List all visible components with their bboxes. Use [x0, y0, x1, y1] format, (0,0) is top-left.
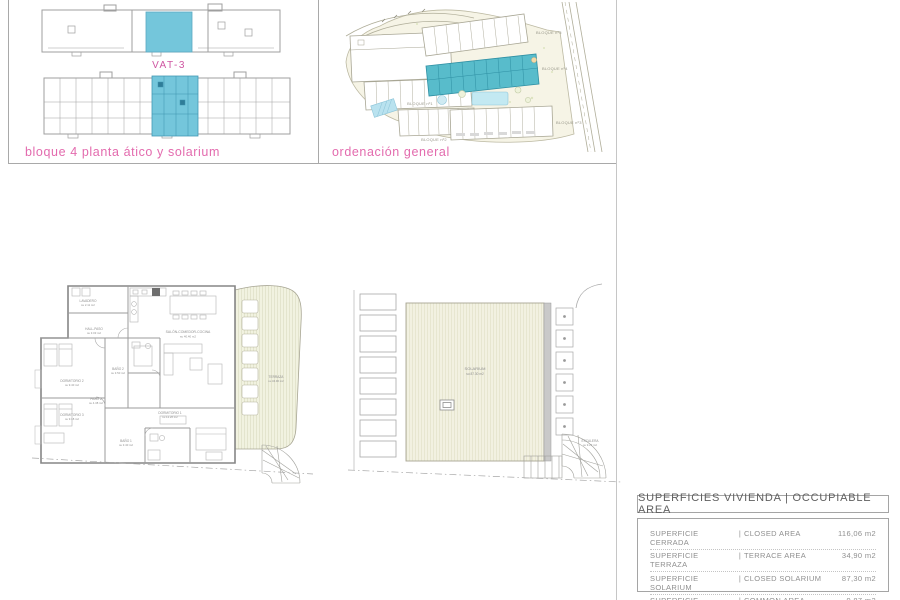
- row-value: 116,06 m2: [838, 529, 876, 538]
- table-row: SUPERFICIE TERRAZA|TERRACE AREA 34,90 m2: [650, 550, 876, 573]
- row-label-es: SUPERFICIE COMUNES: [650, 596, 736, 600]
- block-label-2: BLOQUE nº2: [421, 137, 447, 142]
- spiral-stair: [262, 445, 300, 483]
- apartment-floor-plan: LAVADERO su 2.11 m2 HALL-PASO su 3.03 m2…: [30, 278, 315, 492]
- plan-sheet: VAT-3: [0, 0, 900, 600]
- highlighted-unit-solarium: [146, 12, 192, 52]
- bloque-3: [450, 106, 553, 140]
- table-row: SUPERFICIE SOLARIUM|CLOSED SOLARIUM 87,3…: [650, 572, 876, 595]
- terrace-loungers: [242, 300, 258, 415]
- caption-bloque4: bloque 4 planta ático y solarium: [25, 145, 220, 159]
- table-row: SUPERFICIE CERRADA|CLOSED AREA 116,06 m2: [650, 527, 876, 550]
- svg-text:su 4.38 m2: su 4.38 m2: [89, 401, 103, 405]
- row-label-en: CLOSED SOLARIUM: [744, 574, 821, 592]
- lounger-squares: [556, 308, 573, 435]
- svg-text:su 9.27 m2: su 9.27 m2: [583, 443, 597, 447]
- svg-text:su 12.26 m2: su 12.26 m2: [162, 415, 178, 419]
- svg-text:su 2.11 m2: su 2.11 m2: [81, 303, 95, 307]
- bloque4-key-plans: VAT-3: [12, 2, 312, 144]
- svg-text:SALÓN-COMEDOR-COCINA: SALÓN-COMEDOR-COCINA: [166, 329, 211, 334]
- svg-text:su 9.18 m2: su 9.18 m2: [65, 417, 79, 421]
- row-label-es: SUPERFICIE TERRAZA: [650, 551, 736, 569]
- block-label-5: BLOQUE nº5: [536, 30, 562, 35]
- caption-ordenacion: ordenación general: [332, 145, 450, 159]
- panel-left-border: [8, 0, 9, 163]
- plot-boundary-line-2: [348, 470, 622, 482]
- row-pipe: |: [736, 529, 744, 547]
- svg-text:su 40.40 m2: su 40.40 m2: [180, 335, 196, 339]
- svg-text:su 3.03 m2: su 3.03 m2: [87, 331, 101, 335]
- row-label-en: TERRACE AREA: [744, 551, 806, 569]
- skylight: [440, 400, 454, 410]
- row-value: 9,87 m2: [846, 596, 876, 600]
- row-pipe: |: [736, 551, 744, 569]
- row-pipe: |: [736, 574, 744, 592]
- row-label-en: CLOSED AREA: [744, 529, 801, 547]
- svg-text:su 9.40 m2: su 9.40 m2: [65, 383, 79, 387]
- row-label-es: SUPERFICIE SOLARIUM: [650, 574, 736, 592]
- area-table: SUPERFICIE CERRADA|CLOSED AREA 116,06 m2…: [637, 518, 889, 592]
- vat3-label: VAT-3: [152, 60, 186, 71]
- row-label-es: SUPERFICIE CERRADA: [650, 529, 736, 547]
- corner-curve: [576, 284, 602, 308]
- area-table-title: SUPERFICIES VIVIENDA | OCCUPIABLE AREA: [637, 495, 889, 513]
- panel-middle-border: [318, 0, 319, 163]
- block-label-4: BLOQUE nº4: [542, 66, 568, 71]
- row-value: 87,30 m2: [842, 574, 876, 583]
- row-label-en: COMMON AREA: [744, 596, 805, 600]
- svg-text:SOLARIUM: SOLARIUM: [465, 366, 486, 371]
- parapet-wall: [544, 303, 551, 461]
- svg-text:su 34.90 m2: su 34.90 m2: [268, 379, 284, 383]
- planter-column: [354, 290, 396, 470]
- block-label-3: BLOQUE nº3: [556, 120, 582, 125]
- highlighted-unit-atico: [152, 76, 198, 136]
- panel-bottom-border: [8, 163, 616, 164]
- row-pipe: |: [736, 596, 744, 600]
- solarium-plan: SOLARIUM su 87.30 m2 ESCALERA su 9.27 m2: [348, 278, 624, 492]
- site-plan: BLOQUE nº1 BLOQUE nº2: [322, 2, 614, 152]
- svg-text:su 3.50 m2: su 3.50 m2: [111, 371, 125, 375]
- svg-text:su 3.40 m2: su 3.40 m2: [119, 443, 133, 447]
- block-label-1: BLOQUE nº1: [407, 101, 433, 106]
- table-row: SUPERFICIE COMUNES|COMMON AREA 9,87 m2: [650, 595, 876, 600]
- svg-text:su 87.30 m2: su 87.30 m2: [466, 372, 484, 376]
- solarium-deck: [406, 303, 544, 461]
- row-value: 34,90 m2: [842, 551, 876, 560]
